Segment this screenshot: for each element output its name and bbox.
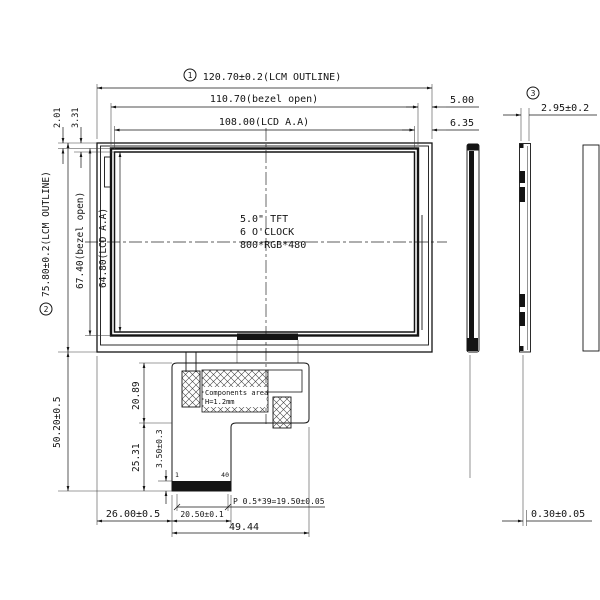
ref-3-number: 3 (531, 89, 536, 98)
dim-50_20-text: 50.20±0.5 (52, 397, 63, 448)
dim-tape-thickness: 0.30±0.05 (502, 509, 592, 526)
dim-lcd-width-text: 108.00(LCD A.A) (219, 117, 309, 128)
pin-1-label: 1 (175, 471, 179, 479)
dim-lcm-height: 2 75.80±0.2(LCM OUTLINE) (40, 143, 97, 352)
side1-panel-band (469, 151, 474, 338)
dim-0_30-text: 0.30±0.05 (531, 509, 585, 520)
dim-fpc-body-drop: 20.89 (131, 363, 172, 423)
connector-contact-bar (173, 481, 231, 491)
dim-20_89-text: 20.89 (131, 381, 142, 410)
fpc-attach-bar (237, 334, 298, 341)
ref-1-number: 1 (188, 71, 193, 80)
viewing-direction-note: 6 O'CLOCK (240, 227, 294, 238)
component-2 (273, 397, 291, 428)
dim-5_00-text: 5.00 (450, 95, 474, 106)
dim-fpc-drop: 50.20±0.5 (52, 352, 172, 491)
dim-lcd-top-offset: 3.31 (71, 108, 115, 168)
dim-thickness: 3 2.95±0.2 (503, 87, 597, 141)
lcm-outline-drawing: 5.0" TFT 6 O'CLOCK 800*RGB*480 Component… (0, 0, 600, 600)
components-area-extension (268, 370, 302, 392)
side2-top-mark (520, 144, 524, 148)
dim-6_35-text: 6.35 (450, 118, 474, 129)
left-notch (105, 157, 111, 187)
dim-fpc-tail-drop: 25.31 (131, 423, 144, 491)
side2-tab-4 (520, 312, 526, 326)
resolution-note: 800*RGB*480 (240, 240, 306, 251)
side-view-1 (467, 144, 480, 478)
dim-25_31-text: 25.31 (131, 443, 142, 472)
component-1 (182, 371, 200, 407)
dim-bezel-height-text: 67.40(bezel open) (75, 192, 86, 289)
dim-contact-length: 3.50±0.3 (155, 429, 172, 504)
side2-tab-1 (520, 171, 526, 183)
side2-bottom-mark (520, 346, 524, 351)
dim-49_44-text: 49.44 (229, 522, 259, 533)
dim-pin-pitch: P 0.5*39=19.50±0.05 (174, 494, 325, 511)
dim-tail-width: 20.50±0.1 (172, 495, 231, 525)
dim-3_50-text: 3.50±0.3 (155, 429, 164, 468)
fpc-outline: Components area H=1.2mm 1 40 (172, 352, 309, 491)
dim-lcm-width-text: 120.70±0.2(LCM OUTLINE) (203, 72, 341, 83)
dim-20_50-text: 20.50±0.1 (180, 510, 224, 519)
side1-bottom-foot (467, 338, 479, 351)
dim-bezel-top-offset: 2.01 (53, 108, 111, 164)
components-area-label: Components area (205, 389, 268, 397)
dim-thickness-text: 2.95±0.2 (541, 103, 589, 114)
side1-top-cap (468, 145, 479, 151)
side-view-2 (520, 144, 531, 527)
ref-2-number: 2 (44, 305, 49, 314)
components-height-label: H=1.2mm (205, 398, 235, 406)
dim-lcd-height-text: 64.80(LCD A.A) (98, 208, 109, 288)
side2-tab-2 (520, 187, 526, 202)
dim-lcm-height-text: 75.80±0.2(LCM OUTLINE) (41, 171, 52, 297)
dim-bezel-right-offset: 5.00 (406, 95, 479, 107)
pin-40-label: 40 (221, 471, 229, 479)
dim-lcd-width: 108.00(LCD A.A) (115, 117, 415, 149)
dim-3_31-text: 3.31 (71, 108, 81, 128)
end-view-outline (583, 145, 599, 351)
drawing-canvas: 5.0" TFT 6 O'CLOCK 800*RGB*480 Component… (0, 0, 600, 600)
panel-size-note: 5.0" TFT (240, 214, 288, 225)
dim-bezel-width-text: 110.70(bezel open) (210, 94, 318, 105)
dim-26_00-text: 26.00±0.5 (106, 509, 160, 520)
dim-pitch-text: P 0.5*39=19.50±0.05 (233, 497, 325, 506)
dim-lcd-right-offset: 6.35 (402, 118, 479, 130)
dim-2_01-text: 2.01 (53, 108, 63, 128)
side2-tab-3 (520, 294, 526, 307)
